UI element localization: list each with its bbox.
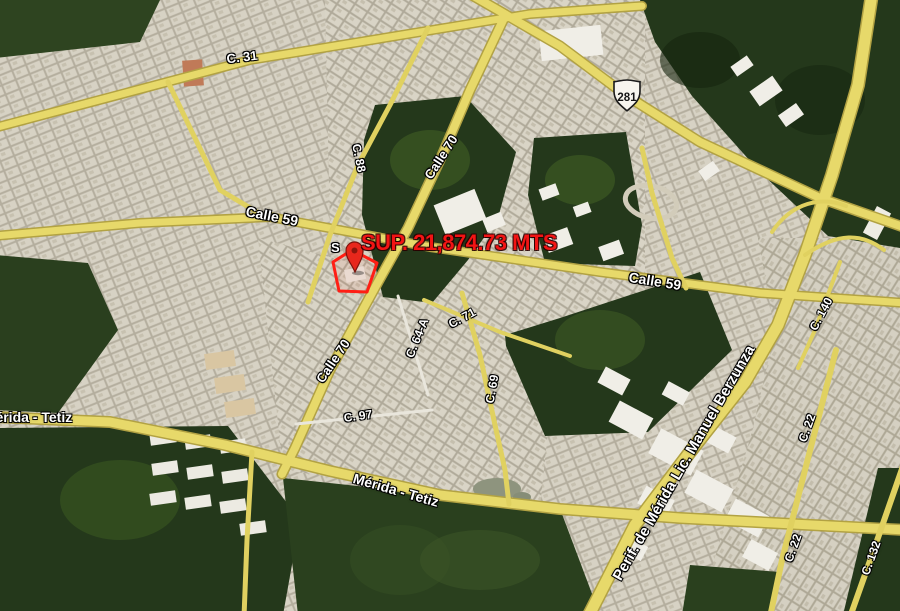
map-viewport[interactable]: 281 S SUP. 21,874.73 MTS C. 31Calle 59C.… <box>0 0 900 611</box>
highway-shield-number: 281 <box>617 92 637 104</box>
satellite-imagery: 281 <box>0 0 900 611</box>
